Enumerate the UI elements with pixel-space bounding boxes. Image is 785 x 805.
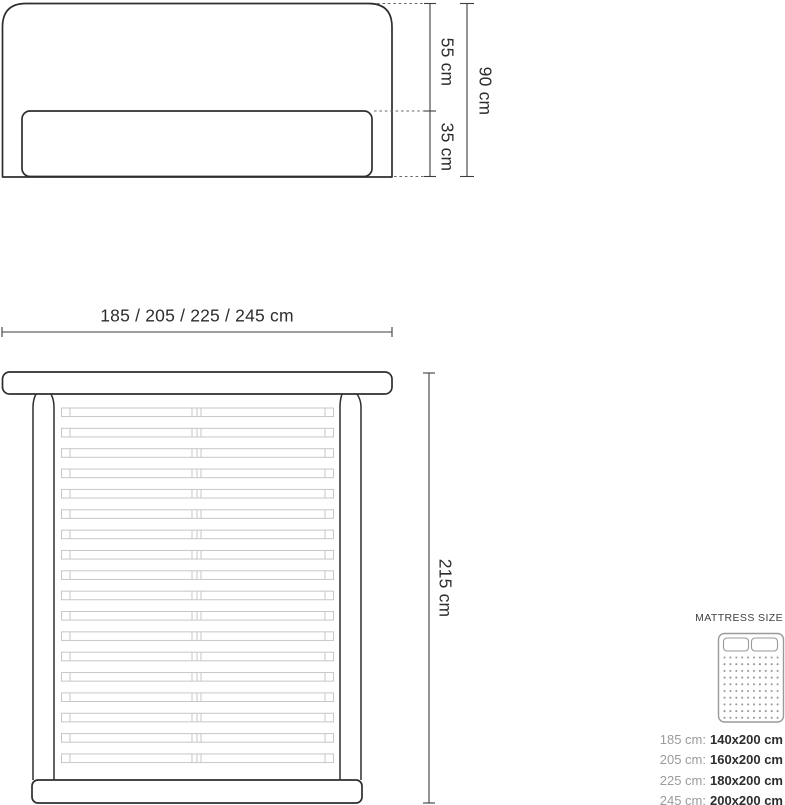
mattress-size-row: 185 cm:140x200 cm <box>660 730 783 750</box>
frame-width-label: 205 cm: <box>660 752 706 767</box>
slat <box>62 530 334 539</box>
footboard-plan <box>32 780 362 803</box>
double-mattress-icon <box>719 634 784 723</box>
mattress-size-row: 205 cm:160x200 cm <box>660 750 783 770</box>
slat <box>62 713 334 722</box>
bed-dimensions-diagram-page: 55 cm 35 cm 90 cm 185 / 205 / 225 / 245 … <box>0 0 785 805</box>
mattress-size-title: MATTRESS SIZE <box>695 612 783 624</box>
mattress-size-table: 185 cm:140x200 cm 205 cm:160x200 cm 225 … <box>660 730 783 805</box>
slat <box>62 469 334 478</box>
slat <box>62 408 334 417</box>
slat <box>62 449 334 458</box>
slat <box>62 591 334 600</box>
mattress-size-value: 160x200 cm <box>710 752 783 767</box>
bed-diagram-canvas <box>0 0 785 805</box>
front-view-base <box>22 111 372 177</box>
slat <box>62 693 334 702</box>
top-view-dimension-lines <box>2 327 435 803</box>
slat <box>62 632 334 641</box>
frame-width-label: 245 cm: <box>660 793 706 805</box>
mattress-size-value: 180x200 cm <box>710 773 783 788</box>
mattress-size-value: 140x200 cm <box>710 732 783 747</box>
headboard-plan <box>3 372 393 394</box>
front-view-projection-lines <box>374 4 429 177</box>
slat <box>62 612 334 621</box>
slat <box>62 428 334 437</box>
front-view-outline <box>3 4 393 178</box>
frame-width-label: 225 cm: <box>660 773 706 788</box>
mattress-size-row: 225 cm:180x200 cm <box>660 771 783 791</box>
slat <box>62 734 334 743</box>
slat <box>62 652 334 661</box>
upper-height-label: 55 cm <box>437 38 458 87</box>
mattress-size-value: 200x200 cm <box>710 793 783 805</box>
pillow-left <box>724 638 749 651</box>
length-label: 215 cm <box>435 559 456 618</box>
slat <box>62 550 334 559</box>
width-options-label: 185 / 205 / 225 / 245 cm <box>100 306 294 327</box>
slat <box>62 673 334 682</box>
slat <box>62 510 334 519</box>
lower-height-label: 35 cm <box>437 123 458 172</box>
frame-width-label: 185 cm: <box>660 732 706 747</box>
mattress-dots <box>723 656 778 718</box>
slat <box>62 754 334 763</box>
pillow-right <box>752 638 778 651</box>
slat <box>62 571 334 580</box>
total-height-label: 90 cm <box>475 67 496 116</box>
slats <box>62 408 334 763</box>
slat <box>62 489 334 498</box>
mattress-size-row: 245 cm:200x200 cm <box>660 791 783 805</box>
